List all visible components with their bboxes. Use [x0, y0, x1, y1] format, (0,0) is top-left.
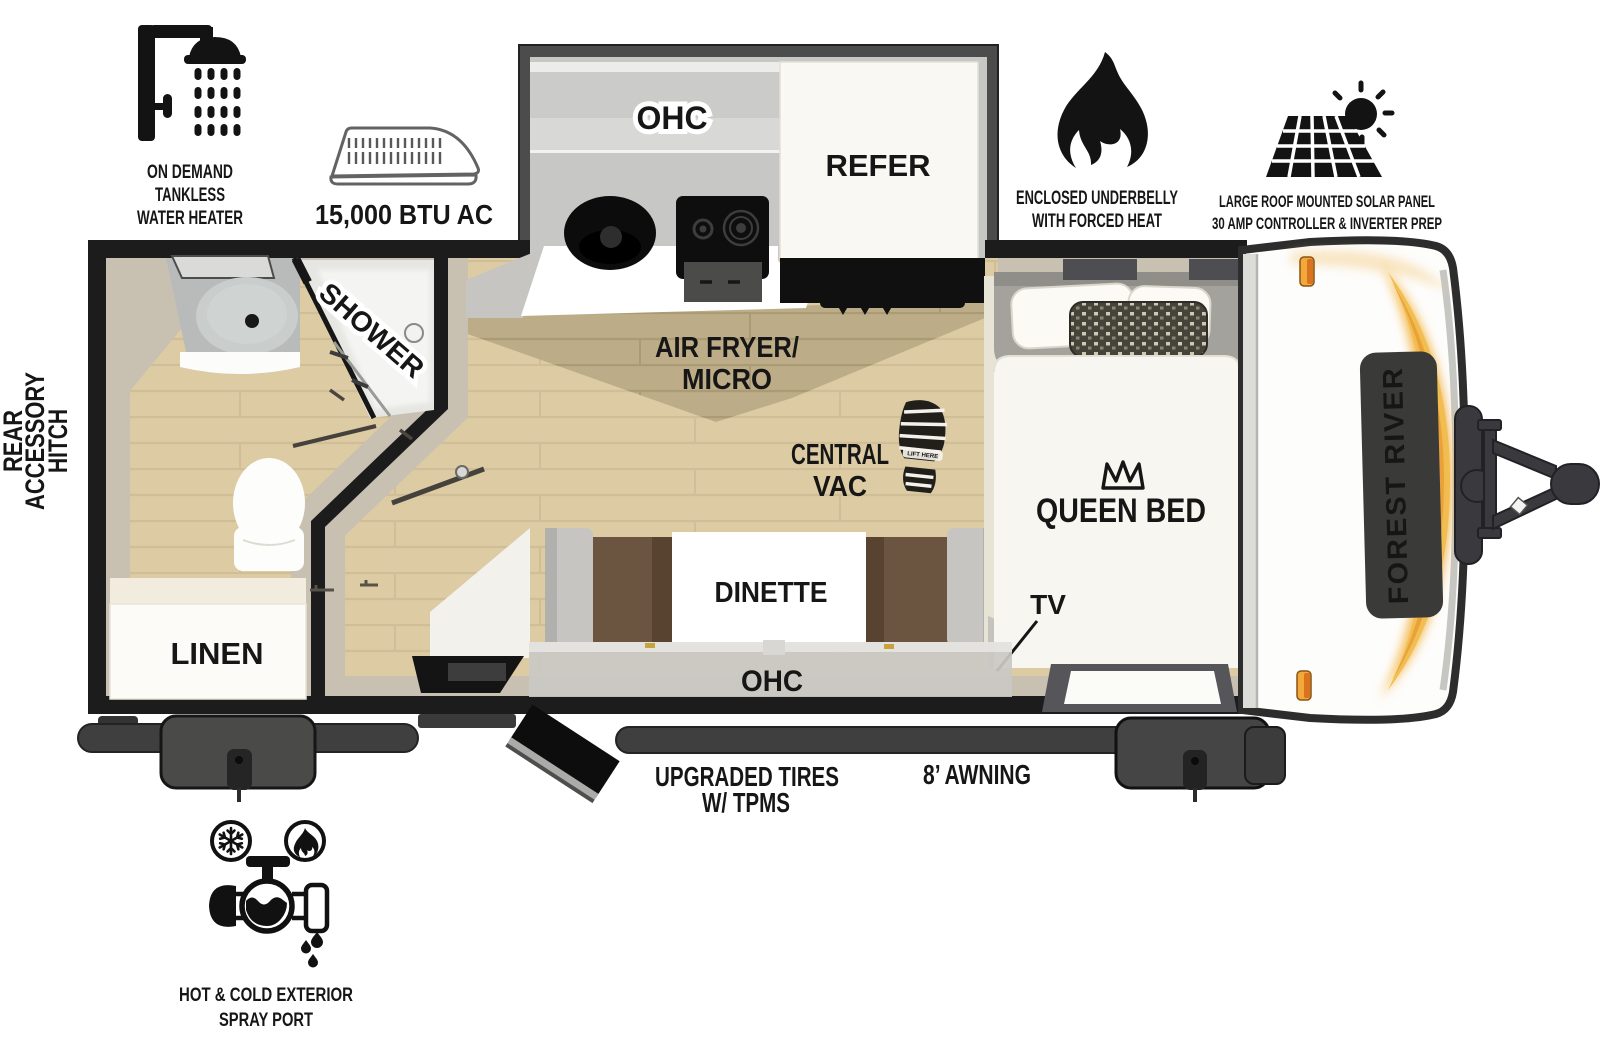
svg-text:CENTRAL: CENTRAL: [791, 439, 889, 471]
svg-text:LINEN: LINEN: [171, 636, 264, 671]
svg-text:W/ TPMS: W/ TPMS: [702, 787, 790, 818]
svg-text:OHC: OHC: [741, 665, 803, 698]
svg-text:SPRAY PORT: SPRAY PORT: [219, 1010, 313, 1031]
svg-text:AIR FRYER/: AIR FRYER/: [655, 332, 799, 364]
svg-text:VAC: VAC: [813, 471, 867, 503]
svg-text:MICRO: MICRO: [682, 364, 772, 396]
svg-text:WITH FORCED HEAT: WITH FORCED HEAT: [1032, 211, 1162, 232]
svg-text:QUEEN BED: QUEEN BED: [1036, 492, 1206, 530]
svg-text:HOT & COLD EXTERIOR: HOT & COLD EXTERIOR: [179, 985, 353, 1006]
svg-text:ON DEMAND: ON DEMAND: [147, 162, 233, 183]
svg-text:TV: TV: [1030, 589, 1066, 620]
svg-text:OHC: OHC: [636, 100, 707, 136]
svg-text:FOREST RIVER: FOREST RIVER: [1377, 366, 1414, 605]
svg-text:WATER HEATER: WATER HEATER: [137, 208, 243, 229]
svg-text:30 AMP CONTROLLER & INVERTER P: 30 AMP CONTROLLER & INVERTER PREP: [1212, 214, 1442, 233]
svg-text:LARGE ROOF MOUNTED SOLAR PANEL: LARGE ROOF MOUNTED SOLAR PANEL: [1219, 192, 1435, 211]
svg-text:TANKLESS: TANKLESS: [155, 185, 225, 206]
svg-text:DINETTE: DINETTE: [715, 577, 828, 609]
svg-text:ENCLOSED UNDERBELLY: ENCLOSED UNDERBELLY: [1016, 188, 1178, 209]
svg-text:REFER: REFER: [825, 148, 930, 183]
svg-text:15,000 BTU AC: 15,000 BTU AC: [315, 199, 493, 230]
svg-text:8’ AWNING: 8’ AWNING: [923, 759, 1031, 790]
svg-text:HITCH: HITCH: [43, 409, 73, 473]
